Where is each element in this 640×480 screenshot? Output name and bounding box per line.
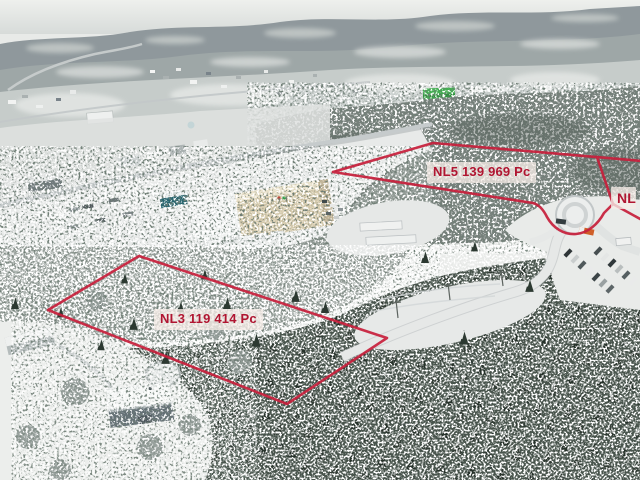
green-sign-dot [282,196,285,199]
round-pool [146,362,180,386]
scene-graphic [0,0,640,480]
aerial-photo: NL5 139 969 Pc NL3 119 414 Pc NL [0,0,640,480]
lot-label-nl5: NL5 139 969 Pc [427,162,536,183]
lot-label-nl-partial: NL [611,187,636,209]
red-sign-dot [277,196,280,199]
cul-de-sac [556,196,594,234]
lot-label-nl3: NL3 119 414 Pc [154,309,263,330]
house [106,382,174,428]
white-trailer [616,237,632,245]
